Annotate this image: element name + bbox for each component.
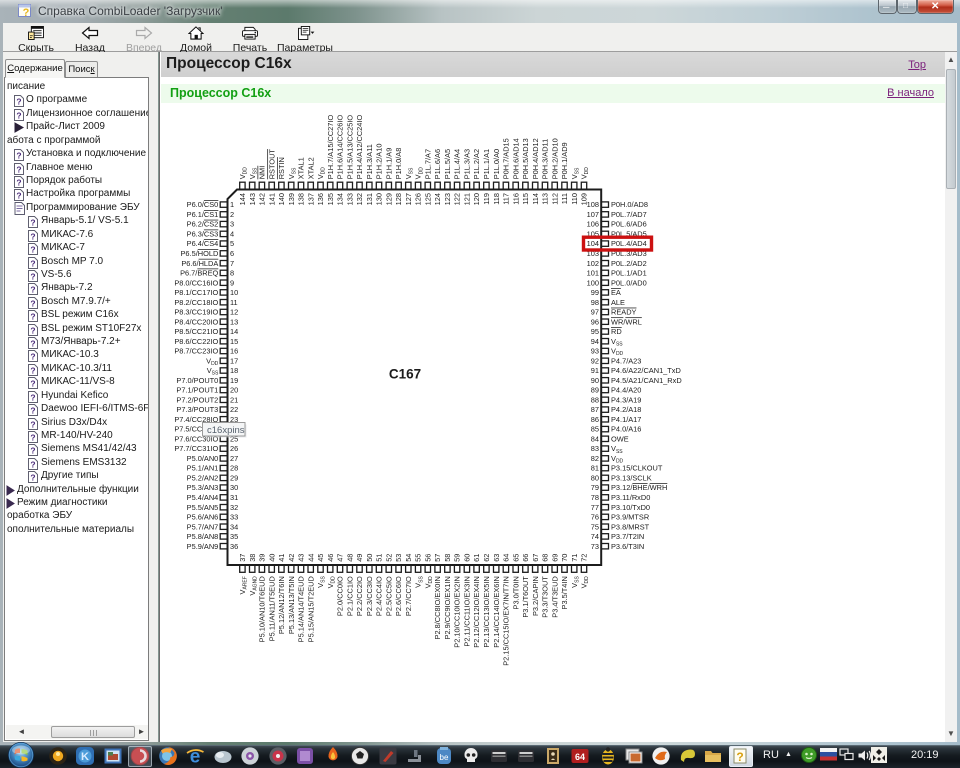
svg-text:136: 136 bbox=[316, 193, 325, 205]
svg-text:P4.3/A19: P4.3/A19 bbox=[611, 395, 641, 404]
svg-text:C167: C167 bbox=[389, 367, 421, 382]
svg-text:123: 123 bbox=[443, 193, 452, 205]
svg-text:P0L.1/AD1: P0L.1/AD1 bbox=[611, 269, 647, 278]
svg-text:RSTOUT: RSTOUT bbox=[267, 149, 276, 180]
svg-text:85: 85 bbox=[591, 425, 599, 434]
svg-text:128: 128 bbox=[394, 193, 403, 205]
svg-text:P2.11/CC11IO/EX3IN: P2.11/CC11IO/EX3IN bbox=[463, 576, 472, 646]
svg-text:11: 11 bbox=[230, 298, 238, 307]
svg-text:77: 77 bbox=[591, 503, 599, 512]
svg-text:35: 35 bbox=[230, 532, 238, 541]
svg-text:90: 90 bbox=[591, 376, 599, 385]
svg-text:P2.1/CC1IO: P2.1/CC1IO bbox=[345, 576, 354, 616]
svg-text:?: ? bbox=[30, 218, 35, 228]
svg-text:28: 28 bbox=[230, 464, 238, 473]
svg-text:?: ? bbox=[30, 365, 35, 375]
svg-text:P5.11/AN11/T5EUD: P5.11/AN11/T5EUD bbox=[267, 576, 276, 641]
svg-text:P5.15/AN15/T2EUD: P5.15/AN15/T2EUD bbox=[306, 576, 315, 642]
svg-text:22: 22 bbox=[230, 405, 238, 414]
svg-text:K: K bbox=[81, 751, 89, 763]
svg-text:?: ? bbox=[30, 379, 35, 389]
svg-text:READY: READY bbox=[611, 308, 637, 317]
svg-text:117: 117 bbox=[502, 193, 511, 205]
svg-text:P0L.0/AD0: P0L.0/AD0 bbox=[611, 278, 647, 287]
svg-text:P3.13/SCLK: P3.13/SCLK bbox=[611, 474, 652, 483]
svg-text:P7.2/POUT2: P7.2/POUT2 bbox=[176, 395, 218, 404]
svg-text:59: 59 bbox=[453, 554, 462, 562]
svg-text:P1H.1/A9: P1H.1/A9 bbox=[384, 148, 393, 180]
svg-text:?: ? bbox=[30, 298, 35, 308]
svg-text:P2.12/CC12IO/EX4IN: P2.12/CC12IO/EX4IN bbox=[472, 576, 481, 647]
svg-text:P5.3/AN3: P5.3/AN3 bbox=[187, 483, 219, 492]
svg-text:64: 64 bbox=[575, 752, 585, 762]
svg-text:P5.2/AN2: P5.2/AN2 bbox=[187, 474, 219, 483]
svg-text:XTAL2: XTAL2 bbox=[306, 157, 315, 179]
svg-text:be: be bbox=[439, 753, 448, 762]
svg-text:75: 75 bbox=[591, 522, 599, 531]
svg-text:XTAL1: XTAL1 bbox=[297, 157, 306, 179]
svg-text:64: 64 bbox=[502, 554, 511, 562]
svg-text:4: 4 bbox=[230, 230, 234, 239]
svg-text:P3.3/T3OUT: P3.3/T3OUT bbox=[541, 576, 550, 618]
svg-text:111: 111 bbox=[560, 193, 569, 204]
svg-text:P4.5/A21/CAN1_RxD: P4.5/A21/CAN1_RxD bbox=[611, 376, 682, 385]
svg-text:P6.0/CS0: P6.0/CS0 bbox=[187, 200, 219, 209]
svg-text:P3.5/T4IN: P3.5/T4IN bbox=[560, 576, 569, 609]
svg-text:VDD: VDD bbox=[580, 576, 591, 589]
svg-text:72: 72 bbox=[580, 554, 589, 562]
svg-text:51: 51 bbox=[375, 554, 384, 562]
svg-text:39: 39 bbox=[258, 554, 267, 562]
svg-text:P0L.4/AD4: P0L.4/AD4 bbox=[611, 239, 647, 248]
svg-text:P2.6/CC6IO: P2.6/CC6IO bbox=[394, 576, 403, 616]
svg-text:OWE: OWE bbox=[611, 434, 629, 443]
svg-text:P0H.4/AD12: P0H.4/AD12 bbox=[531, 138, 540, 179]
svg-text:P5.5/AN5: P5.5/AN5 bbox=[187, 503, 219, 512]
svg-text:P2.4/CC4IO: P2.4/CC4IO bbox=[375, 576, 384, 616]
svg-text:P1L.4/A4: P1L.4/A4 bbox=[453, 149, 462, 179]
svg-text:EA: EA bbox=[611, 288, 621, 297]
svg-text:89: 89 bbox=[591, 386, 599, 395]
svg-text:42: 42 bbox=[287, 554, 296, 562]
svg-text:P4.4/A20: P4.4/A20 bbox=[611, 386, 641, 395]
svg-text:P4.2/A18: P4.2/A18 bbox=[611, 405, 641, 414]
svg-text:?: ? bbox=[16, 164, 21, 174]
svg-text:5: 5 bbox=[230, 239, 234, 248]
svg-text:69: 69 bbox=[550, 554, 559, 562]
svg-text:?: ? bbox=[30, 231, 35, 241]
svg-text:67: 67 bbox=[531, 554, 540, 562]
svg-text:138: 138 bbox=[297, 193, 306, 205]
svg-text:93: 93 bbox=[591, 347, 599, 356]
svg-text:73: 73 bbox=[591, 542, 599, 551]
svg-text:134: 134 bbox=[336, 193, 345, 205]
svg-text:108: 108 bbox=[587, 200, 599, 209]
svg-text:80: 80 bbox=[591, 474, 599, 483]
svg-text:P3.12/BHE/WRH: P3.12/BHE/WRH bbox=[611, 483, 667, 492]
svg-text:116: 116 bbox=[511, 193, 520, 205]
svg-text:?: ? bbox=[30, 271, 35, 281]
svg-text:74: 74 bbox=[591, 532, 599, 541]
svg-text:?: ? bbox=[30, 285, 35, 295]
svg-text:92: 92 bbox=[591, 356, 599, 365]
svg-text:P2.13/CC13IO/EX5IN: P2.13/CC13IO/EX5IN bbox=[482, 576, 491, 647]
svg-text:21: 21 bbox=[230, 395, 238, 404]
svg-text:143: 143 bbox=[248, 193, 257, 205]
svg-text:P0L.7/AD7: P0L.7/AD7 bbox=[611, 210, 647, 219]
svg-text:99: 99 bbox=[591, 288, 599, 297]
svg-text:P2.10/CC10IO/EX2IN: P2.10/CC10IO/EX2IN bbox=[453, 576, 462, 647]
svg-text:98: 98 bbox=[591, 298, 599, 307]
svg-text:87: 87 bbox=[591, 405, 599, 414]
svg-text:P8.4/CC20IO: P8.4/CC20IO bbox=[174, 317, 218, 326]
svg-text:P0L.2/AD2: P0L.2/AD2 bbox=[611, 259, 647, 268]
svg-text:?: ? bbox=[30, 419, 35, 429]
svg-text:130: 130 bbox=[375, 193, 384, 205]
svg-text:?: ? bbox=[16, 191, 21, 201]
svg-text:137: 137 bbox=[306, 193, 315, 205]
svg-text:WR/WRL: WR/WRL bbox=[611, 317, 642, 326]
svg-text:P3.9/MTSR: P3.9/MTSR bbox=[611, 513, 649, 522]
svg-text:17: 17 bbox=[230, 356, 238, 365]
svg-text:P5.1/AN1: P5.1/AN1 bbox=[187, 464, 219, 473]
svg-text:P6.2/CS2: P6.2/CS2 bbox=[187, 220, 219, 229]
svg-text:101: 101 bbox=[587, 269, 599, 278]
svg-text:P3.0/T0IN: P3.0/T0IN bbox=[511, 576, 520, 609]
svg-text:P2.8/CC8IO/EX0IN: P2.8/CC8IO/EX0IN bbox=[433, 576, 442, 639]
svg-text:P0H.5/AD13: P0H.5/AD13 bbox=[521, 138, 530, 179]
svg-text:?: ? bbox=[16, 177, 21, 187]
svg-text:P0H.0/AD8: P0H.0/AD8 bbox=[611, 200, 648, 209]
svg-text:P8.1/CC17IO: P8.1/CC17IO bbox=[174, 288, 218, 297]
svg-text:P2.5/CC5IO: P2.5/CC5IO bbox=[384, 576, 393, 616]
svg-text:P4.1/A17: P4.1/A17 bbox=[611, 415, 641, 424]
svg-text:135: 135 bbox=[326, 193, 335, 205]
svg-text:P3.15/CLKOUT: P3.15/CLKOUT bbox=[611, 464, 663, 473]
svg-text:54: 54 bbox=[404, 554, 413, 562]
svg-text:66: 66 bbox=[521, 554, 530, 562]
svg-text:1: 1 bbox=[230, 200, 234, 209]
svg-text:P7.3/POUT3: P7.3/POUT3 bbox=[176, 405, 218, 414]
svg-text:P0H.6/AD14: P0H.6/AD14 bbox=[511, 138, 520, 179]
svg-text:62: 62 bbox=[482, 554, 491, 562]
svg-text:P6.1/CS1: P6.1/CS1 bbox=[187, 210, 219, 219]
svg-text:?: ? bbox=[30, 339, 35, 349]
svg-text:P5.12/AN12/T6IN: P5.12/AN12/T6IN bbox=[277, 576, 286, 634]
svg-text:P0H.2/AD10: P0H.2/AD10 bbox=[550, 138, 559, 179]
svg-text:P1H.5/A13/CC25IO: P1H.5/A13/CC25IO bbox=[345, 115, 354, 180]
svg-text:16: 16 bbox=[230, 347, 238, 356]
svg-text:?: ? bbox=[736, 750, 743, 764]
svg-text:?: ? bbox=[30, 352, 35, 362]
svg-text:P5.7/AN7: P5.7/AN7 bbox=[187, 522, 219, 531]
svg-text:86: 86 bbox=[591, 415, 599, 424]
svg-text:P1H.2/A10: P1H.2/A10 bbox=[375, 144, 384, 180]
svg-text:P8.2/CC18IO: P8.2/CC18IO bbox=[174, 298, 218, 307]
svg-text:124: 124 bbox=[433, 193, 442, 205]
svg-text:32: 32 bbox=[230, 503, 238, 512]
svg-text:140: 140 bbox=[277, 193, 286, 205]
svg-text:P6.3/CS3: P6.3/CS3 bbox=[187, 230, 219, 239]
svg-text:P3.4/T3EUD: P3.4/T3EUD bbox=[550, 576, 559, 618]
svg-text:100: 100 bbox=[587, 278, 599, 287]
svg-text:P3.2/CAPIN: P3.2/CAPIN bbox=[531, 576, 540, 616]
svg-text:P4.7/A23: P4.7/A23 bbox=[611, 356, 641, 365]
svg-text:126: 126 bbox=[414, 193, 423, 205]
svg-text:P1L.3/A3: P1L.3/A3 bbox=[463, 149, 472, 179]
svg-text:34: 34 bbox=[230, 522, 238, 531]
svg-text:44: 44 bbox=[306, 554, 315, 562]
svg-text:83: 83 bbox=[591, 444, 599, 453]
svg-text:P0L.6/AD6: P0L.6/AD6 bbox=[611, 220, 647, 229]
svg-text:P5.9/AN9: P5.9/AN9 bbox=[187, 542, 219, 551]
svg-text:41: 41 bbox=[277, 554, 286, 562]
svg-text:P6.5/HOLD: P6.5/HOLD bbox=[180, 249, 218, 258]
svg-text:10: 10 bbox=[230, 288, 238, 297]
svg-text:110: 110 bbox=[570, 193, 579, 205]
svg-text:97: 97 bbox=[591, 308, 599, 317]
svg-text:P5.14/AN14/T4EUD: P5.14/AN14/T4EUD bbox=[297, 576, 306, 642]
svg-text:60: 60 bbox=[463, 554, 472, 562]
svg-text:2: 2 bbox=[230, 210, 234, 219]
svg-text:?: ? bbox=[30, 312, 35, 322]
svg-text:121: 121 bbox=[463, 193, 472, 205]
svg-text:P1L.7/A7: P1L.7/A7 bbox=[423, 149, 432, 179]
svg-text:P6.6/HLDA: P6.6/HLDA bbox=[181, 259, 218, 268]
svg-text:52: 52 bbox=[384, 554, 393, 562]
svg-text:20: 20 bbox=[230, 386, 238, 395]
svg-text:27: 27 bbox=[230, 454, 238, 463]
svg-text:P1H.4/A12/CC24IO: P1H.4/A12/CC24IO bbox=[355, 115, 364, 180]
svg-text:P1H.6/A14/CC26IO: P1H.6/A14/CC26IO bbox=[336, 115, 345, 180]
svg-text:P5.6/AN6: P5.6/AN6 bbox=[187, 513, 219, 522]
svg-text:13: 13 bbox=[230, 317, 238, 326]
svg-text:127: 127 bbox=[404, 193, 413, 205]
svg-text:P3.11/RxD0: P3.11/RxD0 bbox=[611, 493, 650, 502]
svg-text:31: 31 bbox=[230, 493, 238, 502]
svg-text:33: 33 bbox=[230, 513, 238, 522]
svg-text:P8.0/CC16IO: P8.0/CC16IO bbox=[174, 278, 218, 287]
svg-text:96: 96 bbox=[591, 317, 599, 326]
svg-text:40: 40 bbox=[267, 554, 276, 562]
svg-text:?: ? bbox=[30, 245, 35, 255]
svg-text:P0H.1/AD9: P0H.1/AD9 bbox=[560, 142, 569, 179]
svg-text:129: 129 bbox=[384, 193, 393, 205]
svg-text:P2.7/CC7IO: P2.7/CC7IO bbox=[404, 576, 413, 616]
svg-text:P4.0/A16: P4.0/A16 bbox=[611, 425, 641, 434]
svg-text:70: 70 bbox=[560, 554, 569, 562]
svg-text:P6.7/BREQ: P6.7/BREQ bbox=[180, 269, 218, 278]
svg-text:?: ? bbox=[23, 7, 30, 18]
svg-text:P4.6/A22/CAN1_TxD: P4.6/A22/CAN1_TxD bbox=[611, 366, 681, 375]
svg-text:?: ? bbox=[30, 325, 35, 335]
svg-text:114: 114 bbox=[531, 193, 540, 205]
svg-text:P1L.0/A0: P1L.0/A0 bbox=[492, 149, 501, 179]
svg-text:?: ? bbox=[16, 97, 21, 107]
svg-text:107: 107 bbox=[587, 210, 599, 219]
svg-text:119: 119 bbox=[482, 193, 491, 205]
svg-text:P7.7/CC31IO: P7.7/CC31IO bbox=[174, 444, 218, 453]
svg-text:88: 88 bbox=[591, 395, 599, 404]
svg-text:15: 15 bbox=[230, 337, 238, 346]
svg-text:65: 65 bbox=[511, 554, 520, 562]
svg-text:P5.10/AN10/T6EUD: P5.10/AN10/T6EUD bbox=[258, 576, 267, 642]
svg-text:122: 122 bbox=[453, 193, 462, 205]
svg-text:84: 84 bbox=[591, 434, 599, 443]
svg-text:P7.1/POUT1: P7.1/POUT1 bbox=[176, 386, 218, 395]
svg-text:19: 19 bbox=[230, 376, 238, 385]
svg-text:P2.15/CC15IO/EX7IN/T7IN: P2.15/CC15IO/EX7IN/T7IN bbox=[502, 576, 511, 666]
svg-text:132: 132 bbox=[355, 193, 364, 205]
svg-text:P1H.3/A11: P1H.3/A11 bbox=[365, 144, 374, 179]
svg-text:61: 61 bbox=[472, 554, 481, 562]
svg-text:12: 12 bbox=[230, 308, 238, 317]
svg-text:139: 139 bbox=[287, 193, 296, 205]
svg-text:P2.9/CC9IO/EX1IN: P2.9/CC9IO/EX1IN bbox=[443, 576, 452, 639]
svg-text:7: 7 bbox=[230, 259, 234, 268]
svg-text:P8.6/CC22IO: P8.6/CC22IO bbox=[174, 337, 218, 346]
svg-text:43: 43 bbox=[297, 554, 306, 562]
svg-text:P2.0/CC0IO: P2.0/CC0IO bbox=[336, 576, 345, 616]
svg-text:82: 82 bbox=[591, 454, 599, 463]
svg-text:68: 68 bbox=[541, 554, 550, 562]
svg-text:?: ? bbox=[30, 392, 35, 402]
svg-text:106: 106 bbox=[587, 220, 599, 229]
svg-text:6: 6 bbox=[230, 249, 234, 258]
svg-text:ALE: ALE bbox=[611, 298, 625, 307]
svg-text:78: 78 bbox=[591, 493, 599, 502]
svg-text:104: 104 bbox=[587, 239, 599, 248]
svg-text:RD: RD bbox=[611, 327, 622, 336]
svg-text:P3.10/TxD0: P3.10/TxD0 bbox=[611, 503, 650, 512]
svg-text:P3.1/T6OUT: P3.1/T6OUT bbox=[521, 576, 530, 618]
svg-text:53: 53 bbox=[394, 554, 403, 562]
svg-text:125: 125 bbox=[423, 193, 432, 205]
svg-text:P3.6/T3IN: P3.6/T3IN bbox=[611, 542, 644, 551]
svg-text:P3.7/T2IN: P3.7/T2IN bbox=[611, 532, 644, 541]
svg-text:P0H.3/AD11: P0H.3/AD11 bbox=[541, 139, 550, 180]
svg-text:112: 112 bbox=[550, 193, 559, 205]
svg-text:3: 3 bbox=[230, 220, 234, 229]
svg-text:58: 58 bbox=[443, 554, 452, 562]
svg-text:P0H.7/AD15: P0H.7/AD15 bbox=[502, 138, 511, 179]
svg-text:36: 36 bbox=[230, 542, 238, 551]
svg-text:?: ? bbox=[30, 473, 35, 483]
svg-text:?: ? bbox=[30, 459, 35, 469]
svg-text:P1L.1/A1: P1L.1/A1 bbox=[482, 149, 491, 179]
svg-text:113: 113 bbox=[541, 193, 550, 205]
svg-text:P8.5/CC21IO: P8.5/CC21IO bbox=[174, 327, 218, 336]
svg-text:8: 8 bbox=[230, 269, 234, 278]
svg-text:P1L.5/A5: P1L.5/A5 bbox=[443, 149, 452, 179]
svg-text:P5.0/AN0: P5.0/AN0 bbox=[187, 454, 219, 463]
svg-text:9: 9 bbox=[230, 278, 234, 287]
svg-text:P1L.2/A2: P1L.2/A2 bbox=[472, 149, 481, 179]
svg-text:45: 45 bbox=[316, 554, 325, 562]
svg-text:VDD: VDD bbox=[580, 167, 591, 180]
svg-text:37: 37 bbox=[238, 554, 247, 562]
svg-text:?: ? bbox=[30, 432, 35, 442]
svg-text:?: ? bbox=[30, 446, 35, 456]
svg-text:P1H.7/A15/CC27IO: P1H.7/A15/CC27IO bbox=[326, 115, 335, 180]
svg-text:71: 71 bbox=[570, 554, 579, 562]
svg-text:79: 79 bbox=[591, 483, 599, 492]
svg-text:P2.14/CC14IO/EX6IN: P2.14/CC14IO/EX6IN bbox=[492, 576, 501, 647]
svg-text:P6.4/CS4: P6.4/CS4 bbox=[187, 239, 219, 248]
svg-text:P5.13/AN13/T5IN: P5.13/AN13/T5IN bbox=[287, 576, 296, 634]
svg-text:55: 55 bbox=[414, 554, 423, 562]
svg-text:47: 47 bbox=[336, 554, 345, 562]
svg-text:144: 144 bbox=[238, 193, 247, 205]
svg-text:18: 18 bbox=[230, 366, 238, 375]
svg-text:P8.7/CC23IO: P8.7/CC23IO bbox=[174, 347, 218, 356]
svg-text:63: 63 bbox=[492, 554, 501, 562]
svg-text:133: 133 bbox=[345, 193, 354, 205]
svg-text:c16xpins: c16xpins bbox=[207, 425, 245, 436]
svg-text:94: 94 bbox=[591, 337, 599, 346]
svg-text:RSTIN: RSTIN bbox=[277, 157, 286, 179]
svg-text:30: 30 bbox=[230, 483, 238, 492]
svg-text:95: 95 bbox=[591, 327, 599, 336]
svg-text:?: ? bbox=[16, 151, 21, 161]
svg-text:46: 46 bbox=[326, 554, 335, 562]
svg-text:P8.3/CC19IO: P8.3/CC19IO bbox=[174, 308, 218, 317]
svg-text:14: 14 bbox=[230, 327, 238, 336]
svg-text:118: 118 bbox=[492, 193, 501, 205]
svg-text:P1L.6/A6: P1L.6/A6 bbox=[433, 149, 442, 179]
svg-text:P7.0/POUT0: P7.0/POUT0 bbox=[176, 376, 218, 385]
svg-text:141: 141 bbox=[267, 193, 276, 205]
svg-text:56: 56 bbox=[423, 554, 432, 562]
svg-text:P5.8/AN8: P5.8/AN8 bbox=[187, 532, 219, 541]
svg-text:P2.3/CC3IO: P2.3/CC3IO bbox=[365, 576, 374, 616]
svg-text:26: 26 bbox=[230, 444, 238, 453]
svg-text:38: 38 bbox=[248, 554, 257, 562]
svg-text:115: 115 bbox=[521, 193, 530, 205]
svg-text:142: 142 bbox=[258, 193, 267, 205]
svg-text:P2.2/CC2IO: P2.2/CC2IO bbox=[355, 576, 364, 616]
svg-text:?: ? bbox=[16, 110, 21, 120]
svg-text:P5.4/AN4: P5.4/AN4 bbox=[187, 493, 219, 502]
svg-text:91: 91 bbox=[591, 366, 599, 375]
svg-text:P3.8/MRST: P3.8/MRST bbox=[611, 522, 650, 531]
svg-text:81: 81 bbox=[591, 464, 599, 473]
svg-text:48: 48 bbox=[345, 554, 354, 562]
svg-text:131: 131 bbox=[365, 193, 374, 205]
svg-text:?: ? bbox=[30, 406, 35, 416]
svg-text:76: 76 bbox=[591, 513, 599, 522]
svg-text:?: ? bbox=[30, 258, 35, 268]
svg-text:49: 49 bbox=[355, 554, 364, 562]
svg-text:NMI: NMI bbox=[258, 166, 267, 180]
svg-text:P1H.0/A8: P1H.0/A8 bbox=[394, 148, 403, 180]
svg-text:102: 102 bbox=[587, 259, 599, 268]
svg-text:120: 120 bbox=[472, 193, 481, 205]
svg-text:57: 57 bbox=[433, 554, 442, 562]
svg-text:50: 50 bbox=[365, 554, 374, 562]
svg-text:29: 29 bbox=[230, 474, 238, 483]
